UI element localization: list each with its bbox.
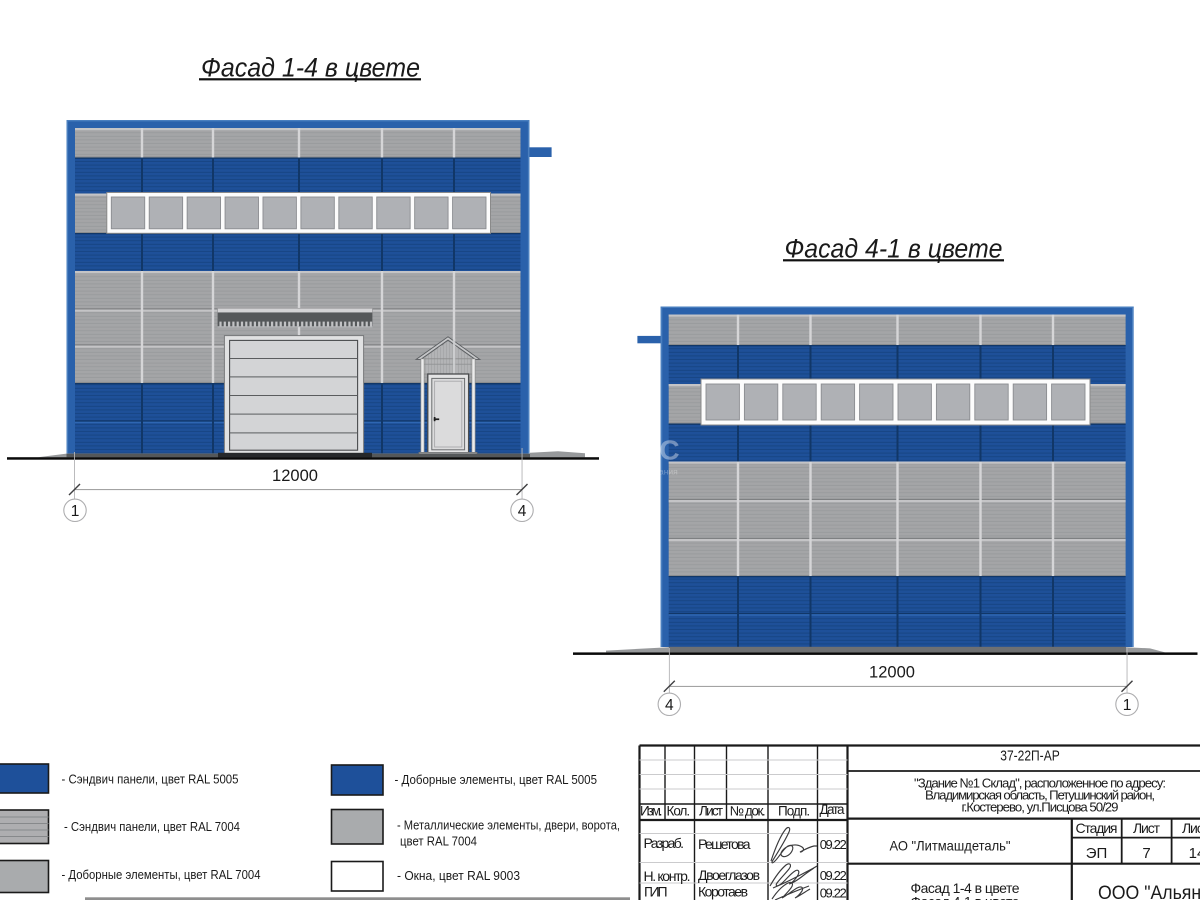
svg-text:14: 14	[1189, 845, 1200, 862]
svg-text:1: 1	[71, 503, 80, 520]
svg-text:№ док.: № док.	[730, 804, 766, 819]
svg-text:АО "Литмашдеталь": АО "Литмашдеталь"	[890, 838, 1011, 854]
svg-text:4: 4	[518, 503, 527, 520]
svg-text:Лист: Лист	[1182, 820, 1200, 836]
svg-text:Фасад 4-1 в цвете: Фасад 4-1 в цвете	[785, 234, 1003, 264]
svg-text:ООО "Альянс: ООО "Альянс	[1098, 882, 1200, 900]
svg-text:- Сэндвич панели, цвет RAL 700: - Сэндвич панели, цвет RAL 7004	[64, 820, 240, 834]
svg-text:Изм.: Изм.	[640, 804, 663, 819]
svg-text:7: 7	[1142, 845, 1150, 862]
svg-text:Фасад 1-4 в цвете: Фасад 1-4 в цвете	[201, 53, 420, 83]
svg-text:Стадия: Стадия	[1076, 820, 1118, 836]
svg-text:1: 1	[1123, 697, 1132, 714]
svg-text:37-22П-АР: 37-22П-АР	[1000, 748, 1060, 765]
svg-text:- Доборные элементы, цвет RAL: - Доборные элементы, цвет RAL 7004	[62, 868, 261, 882]
svg-text:ГИП: ГИП	[644, 884, 668, 900]
svg-text:Лист: Лист	[1133, 820, 1161, 836]
svg-text:Н. контр.: Н. контр.	[644, 868, 691, 884]
svg-text:- Металлические элементы, двер: - Металлические элементы, двери, ворота,	[397, 819, 620, 833]
svg-text:г.Костерево, ул.Писцова 50/29: г.Костерево, ул.Писцова 50/29	[962, 800, 1119, 815]
svg-text:Двоеглазов: Двоеглазов	[698, 867, 760, 883]
svg-text:Кол.: Кол.	[667, 804, 691, 819]
svg-text:09.22: 09.22	[820, 868, 847, 883]
svg-text:09.22: 09.22	[820, 886, 847, 900]
svg-text:Лист: Лист	[699, 804, 723, 819]
svg-text:- Окна, цвет RAL 9003: - Окна, цвет RAL 9003	[397, 869, 520, 883]
svg-text:цвет RAL 7004: цвет RAL 7004	[400, 835, 477, 849]
svg-text:Разраб.: Разраб.	[644, 835, 685, 851]
svg-text:Коротаев: Коротаев	[698, 884, 748, 900]
svg-text:12000: 12000	[272, 467, 318, 485]
svg-text:- Доборные элементы, цвет RAL: - Доборные элементы, цвет RAL 5005	[395, 773, 598, 787]
svg-text:Дата: Дата	[820, 802, 845, 817]
svg-text:09.22: 09.22	[820, 837, 847, 852]
svg-text:Решетова: Решетова	[698, 836, 751, 852]
svg-text:- Сэндвич панели, цвет RAL 500: - Сэндвич панели, цвет RAL 5005	[62, 772, 239, 786]
svg-text:4: 4	[665, 697, 674, 714]
svg-text:С: С	[659, 435, 679, 466]
svg-text:ания: ания	[659, 467, 678, 477]
svg-text:12000: 12000	[869, 664, 915, 682]
svg-text:Подп.: Подп.	[778, 804, 810, 819]
svg-text:ЭП: ЭП	[1086, 845, 1108, 862]
svg-text:Фасад 4-1 в цвете: Фасад 4-1 в цвете	[911, 894, 1020, 900]
